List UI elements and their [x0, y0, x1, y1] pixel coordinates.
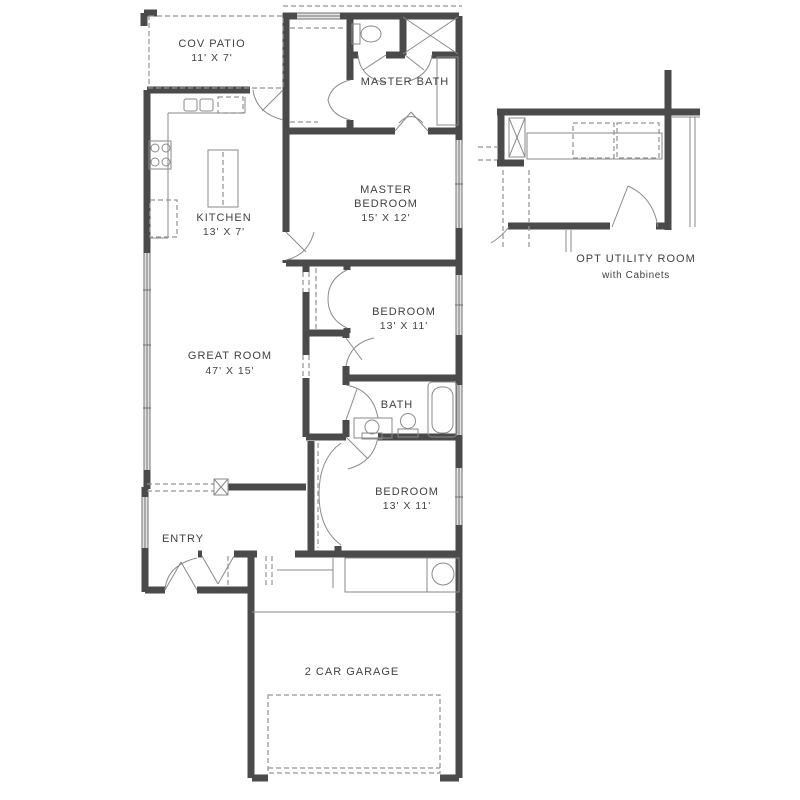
label-master-bedroom-1: MASTER: [360, 184, 412, 196]
inset-door: [612, 186, 658, 227]
walls: [144, 13, 700, 778]
mudroom-dashes: [266, 556, 272, 588]
mudroom-bench: [277, 558, 333, 588]
inset-counter: [527, 133, 662, 159]
bedroom2-closet-bifold: [319, 443, 341, 545]
dishwasher-outline: [218, 97, 243, 113]
label-bedroom2-dims: 13' X 11': [383, 500, 431, 512]
window-master-bedroom: [455, 140, 463, 228]
label-master-bedroom-2: BEDROOM: [354, 198, 418, 210]
window-bedroom2: [455, 468, 463, 525]
toilet-icon-master: [352, 24, 381, 44]
master-vanity: [437, 57, 458, 125]
label-entry: ENTRY: [162, 533, 204, 545]
label-bedroom1: BEDROOM: [372, 306, 436, 318]
label-bedroom1-dims: 13' X 11': [380, 320, 428, 332]
bedroom1-door: [346, 338, 374, 366]
floorplan-page: COV PATIO 11' X 7' KITCHEN 13' X 7' MAST…: [0, 0, 800, 800]
label-cov-patio-dims: 11' X 7': [191, 52, 233, 64]
bath-door: [346, 385, 378, 420]
label-garage: 2 CAR GARAGE: [305, 666, 400, 678]
utility-chase-icon: [214, 479, 228, 495]
label-utility-room-sub: with Cabinets: [601, 270, 670, 281]
master-bath-bedroom-door: [395, 112, 428, 131]
label-master-bath: MASTER BATH: [361, 76, 449, 88]
bathtub-icon: [428, 382, 457, 437]
window-entry: [142, 497, 148, 548]
label-kitchen-dims: 13' X 7': [203, 226, 245, 238]
label-kitchen: KITCHEN: [196, 212, 251, 224]
label-bedroom2: BEDROOM: [375, 486, 439, 498]
patio-door: [253, 90, 283, 120]
dryer-outline: [617, 123, 659, 158]
bedroom2-door: [346, 437, 378, 469]
garage-door-outline: [268, 695, 440, 773]
toilet-icon-bath: [398, 414, 418, 438]
water-heater-icon: [432, 563, 454, 585]
bedroom1-closet-bifold: [328, 270, 347, 328]
master-bedroom-hall-door: [286, 232, 314, 260]
inset-water-heater-chase: [509, 118, 525, 157]
label-cov-patio: COV PATIO: [178, 38, 245, 50]
entry-opening-dashes: [147, 484, 214, 491]
window-great-room: [143, 253, 151, 470]
front-door: [165, 558, 197, 590]
window-bedroom1: [455, 275, 463, 335]
label-great-room-dims: 47' X 15': [205, 365, 254, 377]
label-great-room: GREAT ROOM: [188, 350, 272, 362]
label-bath: BATH: [381, 399, 414, 411]
floorplan-drawing: COV PATIO 11' X 7' KITCHEN 13' X 7' MAST…: [0, 0, 800, 800]
shower-icon: [403, 17, 458, 54]
label-utility-room: OPT UTILITY ROOM: [576, 253, 696, 265]
coat-closet-bifold: [202, 556, 234, 584]
master-closet-doors: [328, 80, 350, 120]
water-heater-platform: [345, 558, 459, 592]
kitchen-sink: [184, 99, 213, 111]
label-master-bedroom-dims: 15' X 12': [361, 212, 410, 224]
washer-outline: [573, 123, 614, 158]
window-top: [297, 13, 340, 19]
refrigerator-outline: [150, 200, 177, 237]
